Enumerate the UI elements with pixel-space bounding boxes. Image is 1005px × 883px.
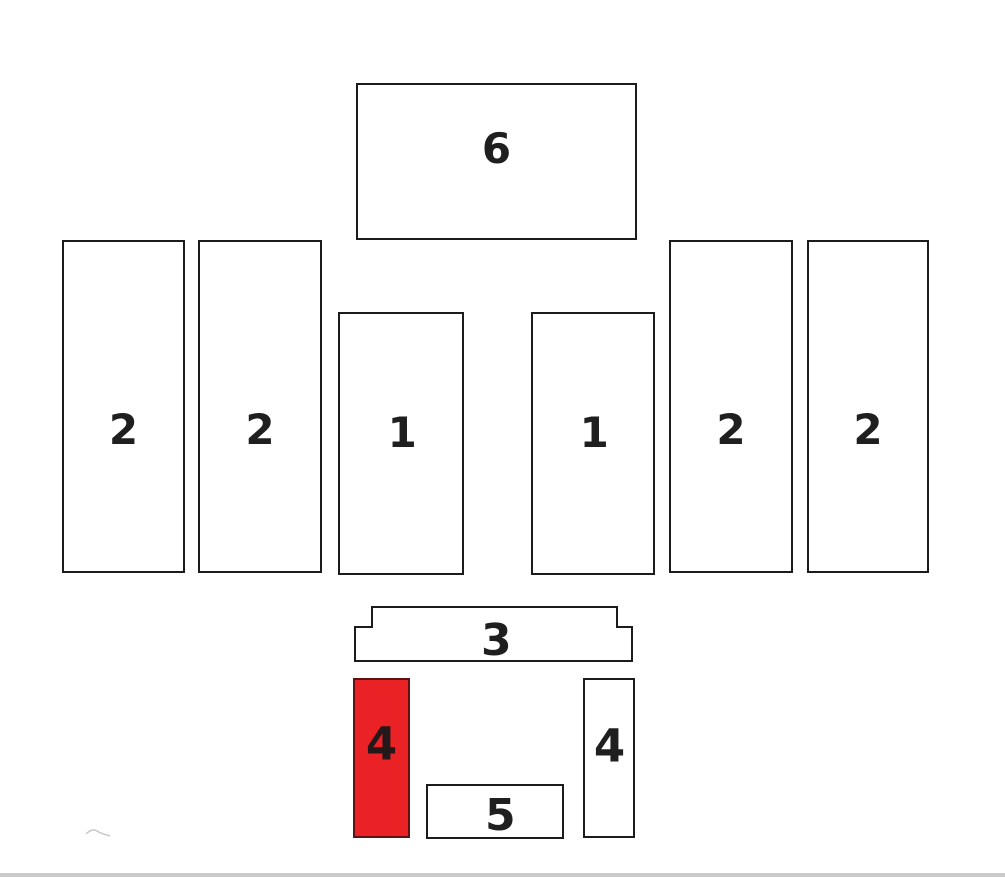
part-number-label: 4 (366, 721, 397, 766)
part-zone-4-left-highlighted[interactable]: 4 (353, 678, 410, 838)
part-number-label: 2 (109, 409, 138, 451)
part-zone-2-far-left[interactable]: 2 (62, 240, 185, 573)
part-number-label: 3 (481, 619, 512, 663)
part-number-label: 2 (245, 409, 274, 451)
part-zone-2-right[interactable]: 2 (669, 240, 793, 573)
pencil-scribble (84, 826, 112, 842)
part-number-label: 1 (580, 412, 609, 454)
part-number-label: 1 (388, 412, 417, 454)
part-zone-1-right[interactable]: 1 (531, 312, 655, 575)
part-zone-4-right[interactable]: 4 (583, 678, 635, 838)
part-zone-3[interactable]: 3 (354, 606, 633, 662)
part-zone-1-left[interactable]: 1 (338, 312, 464, 575)
part-zone-5[interactable]: 5 (426, 784, 564, 839)
baseline-rule (0, 873, 1005, 877)
part-zone-2-left[interactable]: 2 (198, 240, 322, 573)
parts-diagram: 6 2 2 1 1 2 2 3 4 5 4 (0, 0, 1005, 883)
part-zone-2-far-right[interactable]: 2 (807, 240, 929, 573)
part-number-label: 5 (485, 794, 516, 838)
part-number-label: 6 (482, 128, 511, 170)
part-zone-6[interactable]: 6 (356, 83, 637, 240)
part-number-label: 2 (716, 409, 745, 451)
part-number-label: 4 (594, 723, 625, 768)
part-number-label: 2 (853, 409, 882, 451)
